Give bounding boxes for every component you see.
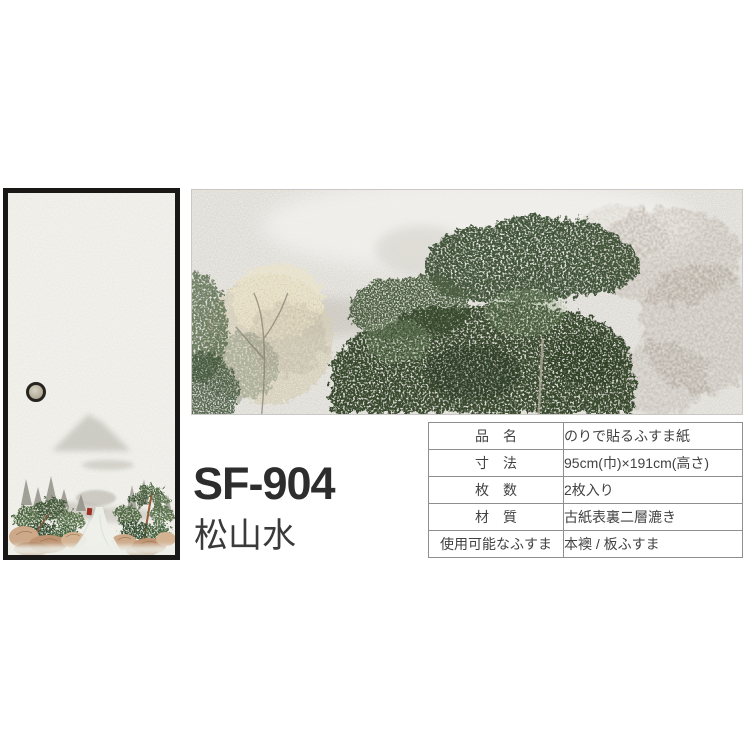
spec-row-material: 材 質 古紙表裏二層漉き bbox=[429, 504, 743, 531]
product-name: 松山水 bbox=[194, 518, 296, 555]
spec-label: 使用可能なふすま bbox=[429, 531, 564, 558]
spec-label: 材 質 bbox=[429, 504, 564, 531]
fusuma-door-photo bbox=[3, 188, 180, 560]
spec-value: 本襖 / 板ふすま bbox=[564, 531, 743, 558]
door-landscape-art bbox=[8, 193, 175, 555]
door-pull-icon bbox=[26, 382, 46, 402]
spec-row-size: 寸 法 95cm(巾)×191cm(高さ) bbox=[429, 450, 743, 477]
spec-value: 2枚入り bbox=[564, 477, 743, 504]
paper-texture-art bbox=[192, 190, 742, 414]
spec-value: 古紙表裏二層漉き bbox=[564, 504, 743, 531]
spec-label: 枚 数 bbox=[429, 477, 564, 504]
spec-label: 寸 法 bbox=[429, 450, 564, 477]
spec-value: 95cm(巾)×191cm(高さ) bbox=[564, 450, 743, 477]
spec-row-usable: 使用可能なふすま 本襖 / 板ふすま bbox=[429, 531, 743, 558]
pattern-detail-photo bbox=[191, 189, 743, 415]
product-sheet: SF-904 松山水 品 名 のりで貼るふすま紙 寸 法 95cm(巾)×191… bbox=[0, 0, 750, 750]
spec-row-count: 枚 数 2枚入り bbox=[429, 477, 743, 504]
product-code: SF-904 bbox=[193, 461, 335, 506]
spec-table: 品 名 のりで貼るふすま紙 寸 法 95cm(巾)×191cm(高さ) 枚 数 … bbox=[428, 422, 743, 558]
spec-label: 品 名 bbox=[429, 423, 564, 450]
spec-value: のりで貼るふすま紙 bbox=[564, 423, 743, 450]
spec-row-name: 品 名 のりで貼るふすま紙 bbox=[429, 423, 743, 450]
